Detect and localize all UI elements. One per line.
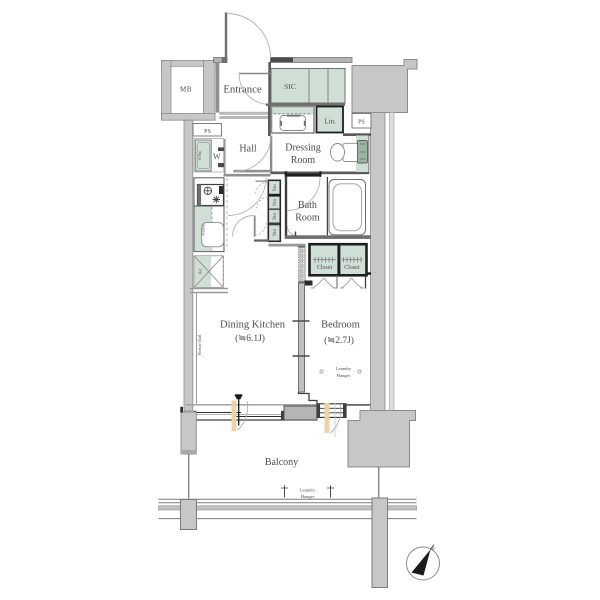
svg-text:Laundry: Laundry bbox=[336, 366, 352, 371]
svg-text:Dressing: Dressing bbox=[285, 143, 321, 154]
svg-text:Bedroom: Bedroom bbox=[321, 320, 360, 331]
svg-text:Sto: Sto bbox=[272, 229, 278, 236]
svg-text:Closet: Closet bbox=[317, 265, 333, 271]
svg-text:Kitchen: Kitchen bbox=[201, 224, 205, 236]
svg-text:MB: MB bbox=[180, 86, 192, 94]
svg-text:Balcony: Balcony bbox=[265, 457, 298, 468]
svg-text:Picture Rail: Picture Rail bbox=[197, 334, 202, 356]
svg-text:W: W bbox=[213, 152, 221, 161]
svg-text:Sto: Sto bbox=[272, 184, 278, 191]
svg-text:Sto: Sto bbox=[272, 213, 278, 220]
svg-text:Bath: Bath bbox=[298, 200, 317, 211]
svg-text:Hanger: Hanger bbox=[301, 494, 315, 499]
svg-text:Ref.: Ref. bbox=[198, 268, 202, 274]
svg-text:Sto: Sto bbox=[272, 199, 278, 206]
svg-text:Lin.: Lin. bbox=[324, 118, 336, 126]
svg-text:Entrance: Entrance bbox=[223, 84, 262, 96]
svg-text:Hall: Hall bbox=[239, 144, 256, 155]
svg-text:Hanger: Hanger bbox=[337, 373, 351, 378]
svg-text:Laundry: Laundry bbox=[300, 488, 316, 493]
svg-text:(≒6.1J): (≒6.1J) bbox=[235, 333, 265, 344]
svg-text:SIC: SIC bbox=[284, 82, 296, 91]
svg-text:Room: Room bbox=[295, 213, 320, 224]
svg-text:W.Pan: W.Pan bbox=[198, 151, 202, 161]
svg-text:Room: Room bbox=[291, 155, 316, 166]
svg-text:PS: PS bbox=[204, 129, 211, 135]
svg-text:Dining Kitchen: Dining Kitchen bbox=[220, 320, 286, 331]
svg-text:Closet: Closet bbox=[344, 265, 360, 271]
svg-text:(≒2.7J): (≒2.7J) bbox=[324, 335, 354, 346]
svg-text:PS: PS bbox=[358, 120, 365, 126]
